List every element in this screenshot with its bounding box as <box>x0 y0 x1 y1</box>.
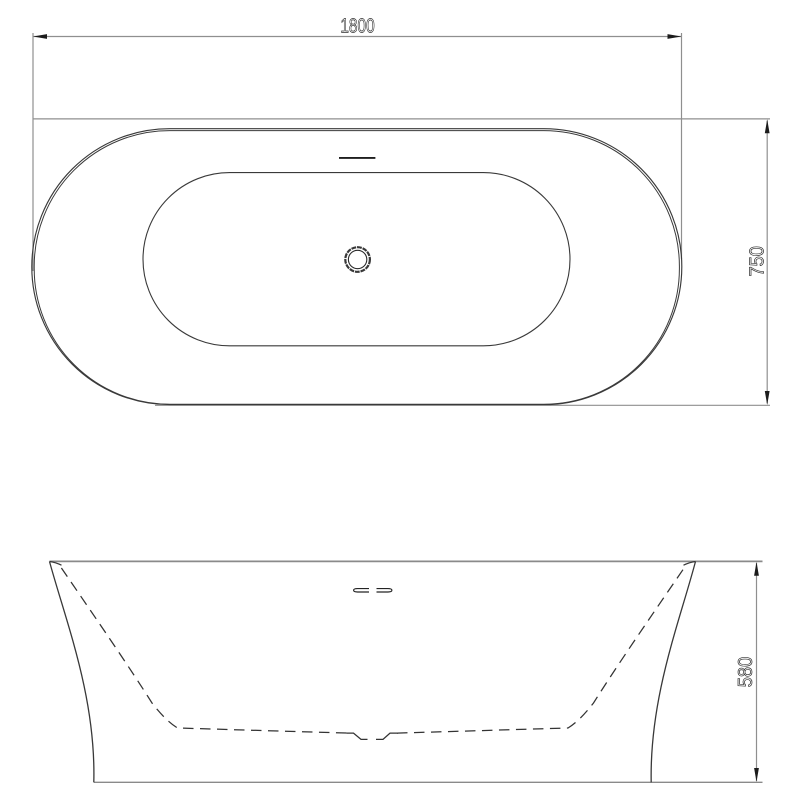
svg-text:580: 580 <box>735 657 757 687</box>
svg-text:750: 750 <box>747 246 769 276</box>
svg-text:1800: 1800 <box>340 15 374 38</box>
